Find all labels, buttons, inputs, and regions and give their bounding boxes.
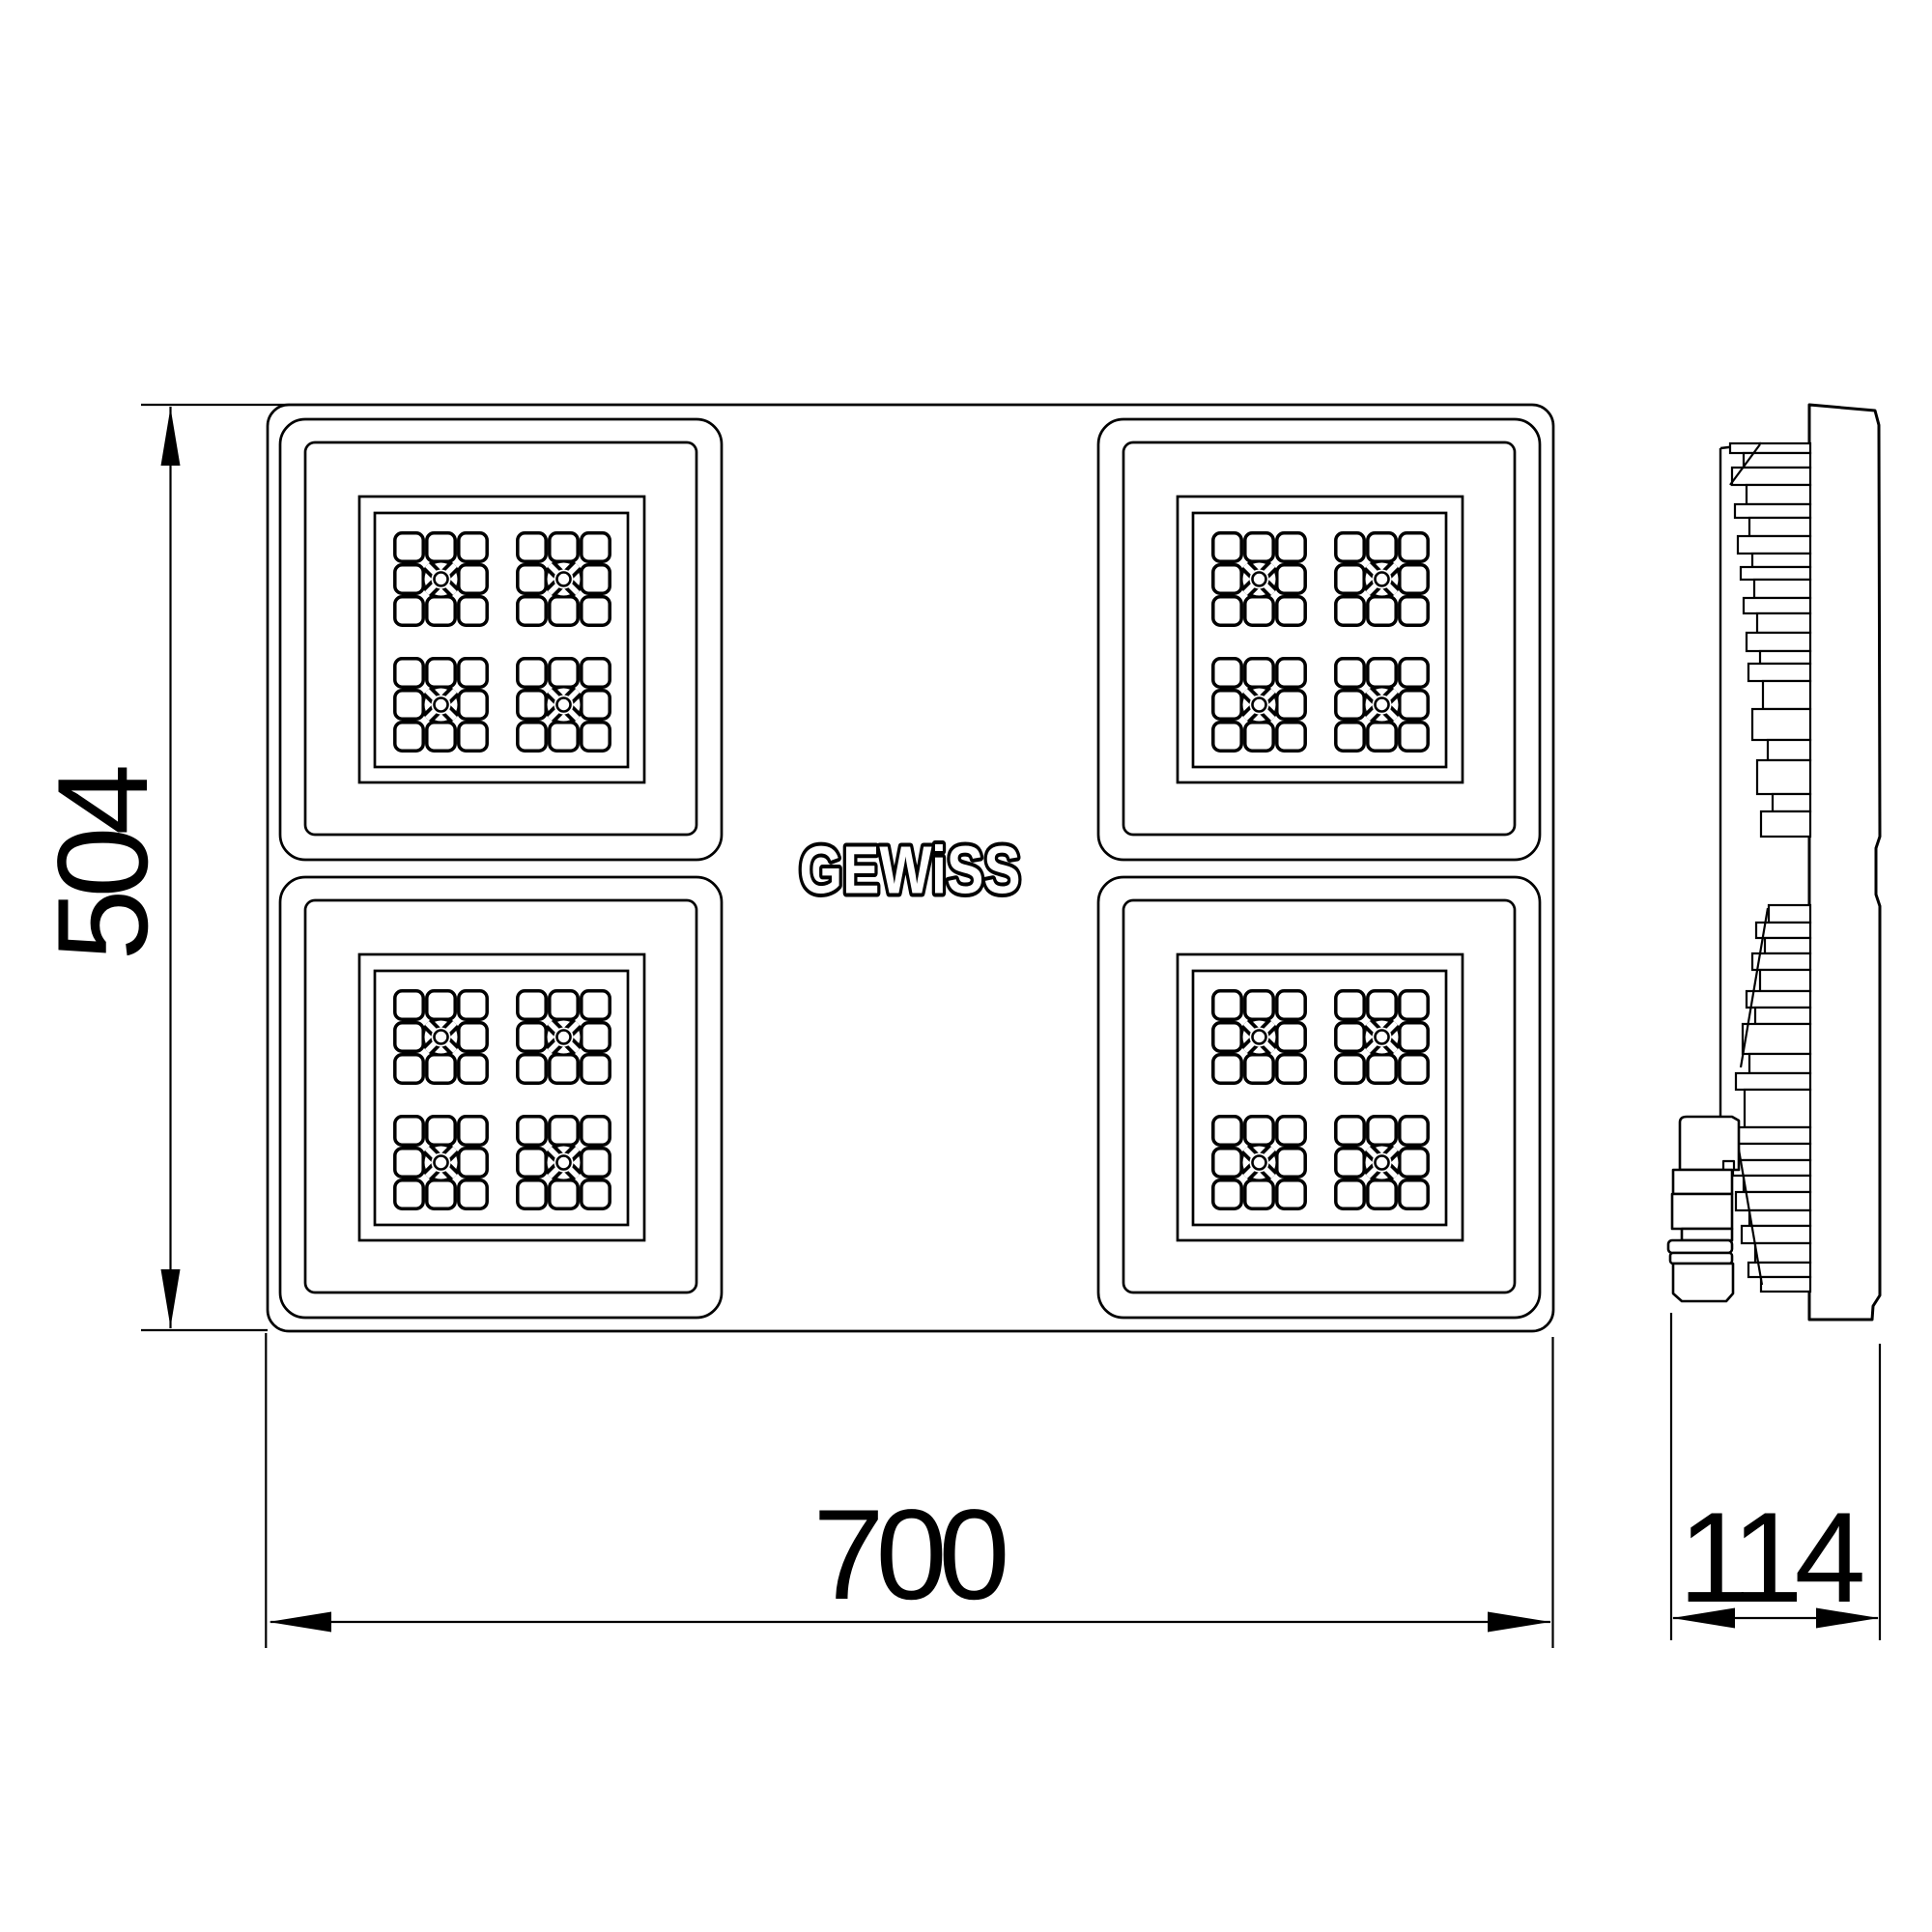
- svg-text:700: 700: [813, 1484, 1006, 1627]
- svg-text:GEWiSS: GEWiSS: [799, 832, 1020, 908]
- svg-text:114: 114: [1678, 1487, 1862, 1630]
- svg-text:504: 504: [32, 767, 175, 961]
